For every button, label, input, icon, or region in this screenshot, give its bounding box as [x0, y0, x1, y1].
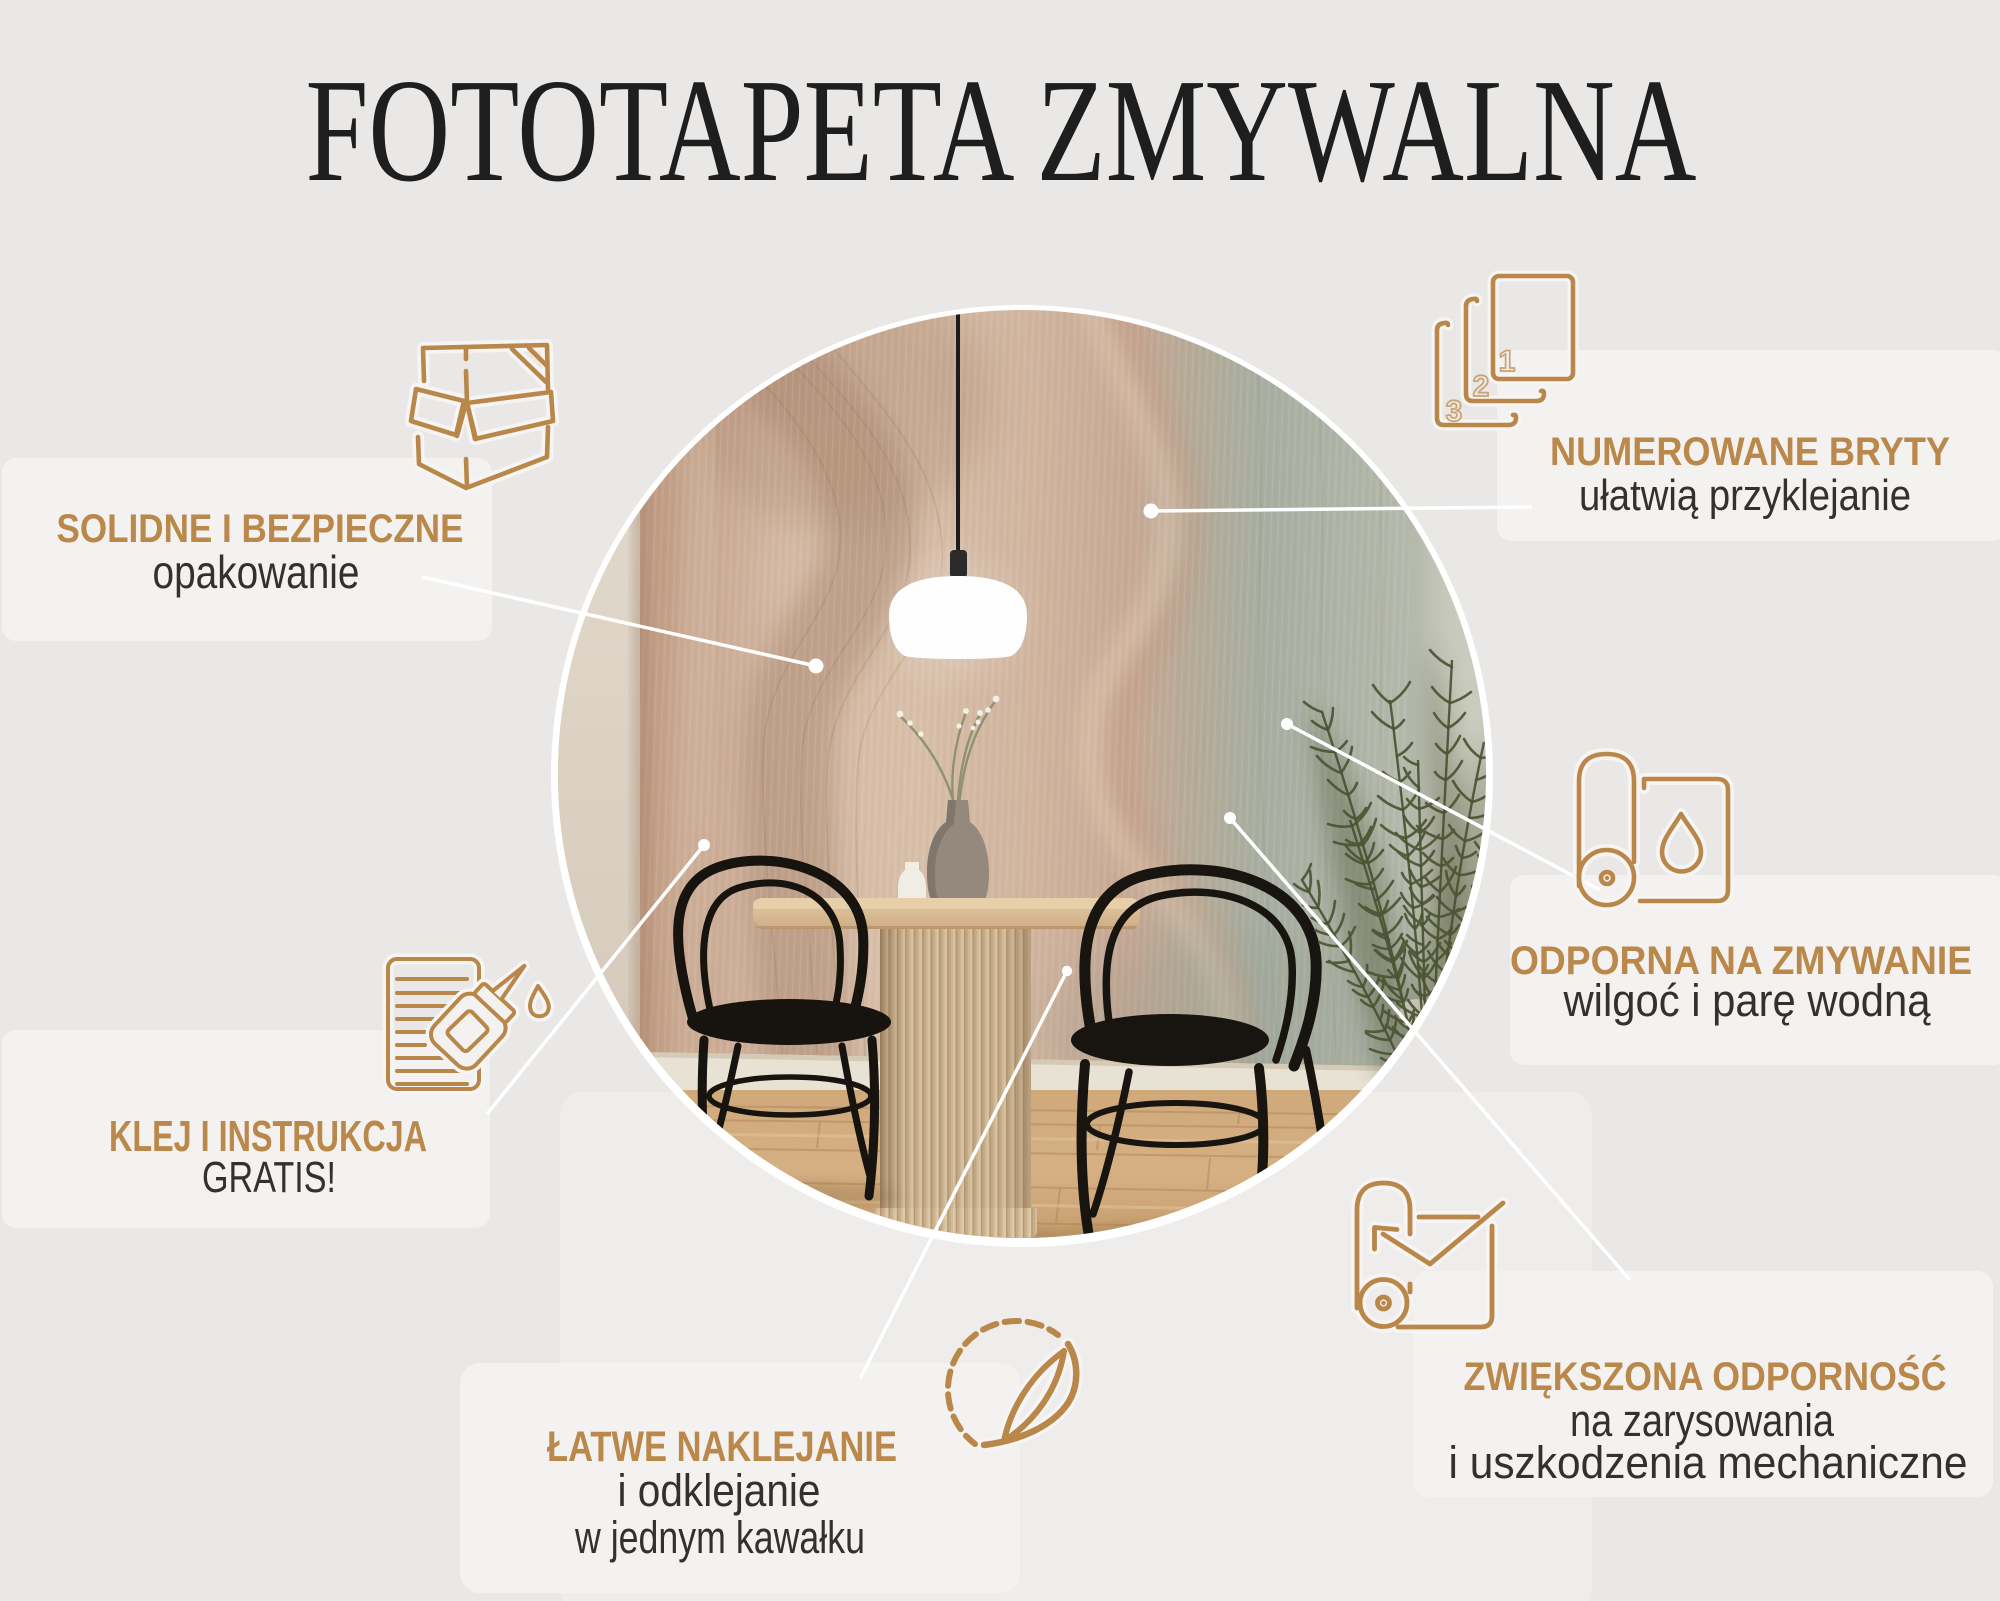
svg-text:ŁATWE NAKLEJANIE: ŁATWE NAKLEJANIE: [547, 1423, 897, 1471]
svg-text:opakowanie: opakowanie: [153, 546, 360, 598]
svg-text:NUMEROWANE BRYTY: NUMEROWANE BRYTY: [1550, 430, 1950, 474]
svg-text:3: 3: [1446, 395, 1463, 428]
svg-text:2: 2: [1473, 370, 1490, 403]
svg-text:ułatwią przyklejanie: ułatwią przyklejanie: [1579, 471, 1911, 520]
svg-text:i uszkodzenia mechaniczne: i uszkodzenia mechaniczne: [1449, 1437, 1968, 1488]
svg-text:ZWIĘKSZONA ODPORNOŚĆ: ZWIĘKSZONA ODPORNOŚĆ: [1464, 1353, 1947, 1399]
svg-text:1: 1: [1499, 345, 1516, 378]
svg-text:GRATIS!: GRATIS!: [202, 1153, 336, 1202]
svg-text:wilgoć i parę wodną: wilgoć i parę wodną: [1563, 975, 1932, 1026]
svg-text:FOTOTAPETA ZMYWALNA: FOTOTAPETA ZMYWALNA: [306, 49, 1697, 213]
svg-text:i odklejanie: i odklejanie: [618, 1465, 821, 1516]
svg-text:SOLIDNE I BEZPIECZNE: SOLIDNE I BEZPIECZNE: [57, 507, 464, 551]
svg-text:w jednym kawałku: w jednym kawałku: [574, 1512, 865, 1563]
